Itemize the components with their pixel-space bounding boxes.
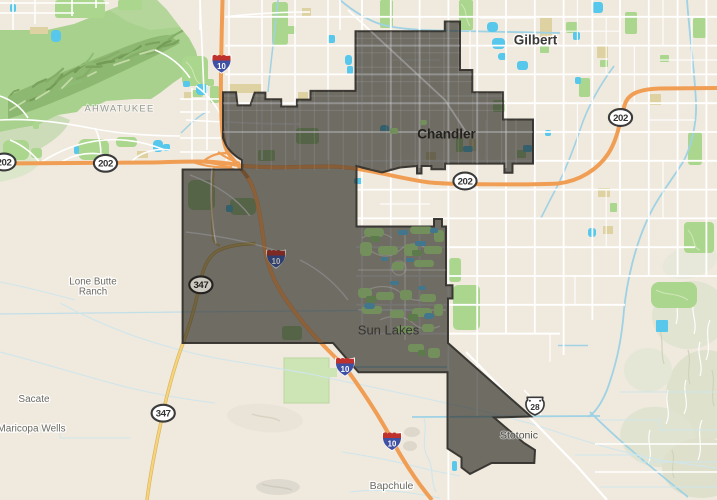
svg-text:Sacate: Sacate xyxy=(18,394,50,405)
svg-text:10: 10 xyxy=(388,439,397,448)
svg-text:Bapchule: Bapchule xyxy=(370,480,414,492)
svg-text:10: 10 xyxy=(272,257,281,266)
svg-text:AHWATUKEE: AHWATUKEE xyxy=(84,103,154,114)
svg-text:202: 202 xyxy=(458,176,473,187)
svg-text:202: 202 xyxy=(98,159,113,170)
svg-text:10: 10 xyxy=(341,365,350,374)
svg-text:Gilbert: Gilbert xyxy=(514,33,558,48)
svg-text:10: 10 xyxy=(217,62,226,71)
svg-text:202: 202 xyxy=(613,113,628,124)
svg-text:Sun Lakes: Sun Lakes xyxy=(358,323,420,338)
svg-text:347: 347 xyxy=(193,280,208,291)
svg-text:Maricopa Wells: Maricopa Wells xyxy=(0,424,66,435)
svg-text:202: 202 xyxy=(0,157,11,168)
svg-text:Ranch: Ranch xyxy=(79,287,107,298)
svg-text:Stotonic: Stotonic xyxy=(500,430,538,442)
svg-text:347: 347 xyxy=(156,409,171,420)
svg-text:28: 28 xyxy=(530,402,540,412)
svg-text:Chandler: Chandler xyxy=(417,127,476,142)
